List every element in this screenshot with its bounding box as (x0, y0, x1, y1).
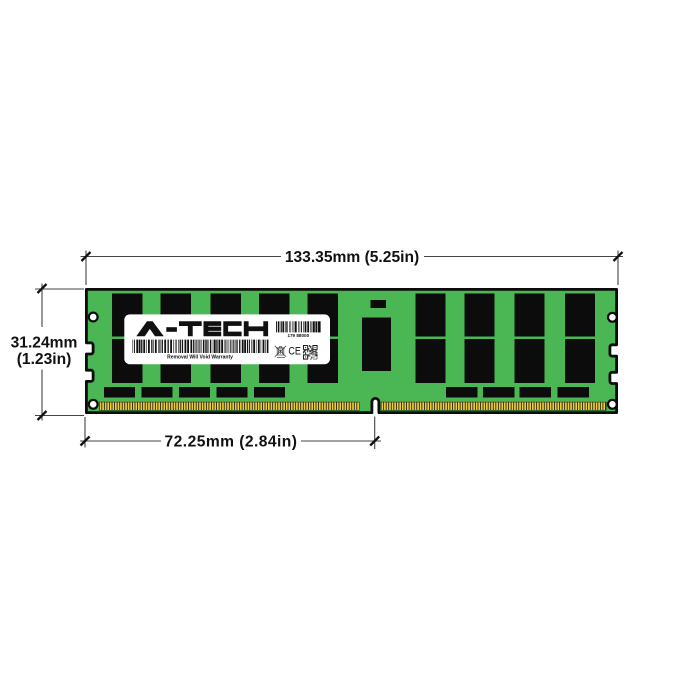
svg-text:31.24mm: 31.24mm (11, 335, 78, 352)
svg-text:72.25mm (2.84in): 72.25mm (2.84in) (165, 434, 298, 451)
svg-text:CE: CE (288, 346, 301, 358)
svg-text:133.35mm (5.25in): 133.35mm (5.25in) (285, 249, 419, 266)
svg-text:(1.23in): (1.23in) (17, 351, 72, 368)
svg-text:179 88000: 179 88000 (287, 333, 309, 338)
svg-text:Removal Will Void Warranty: Removal Will Void Warranty (167, 355, 233, 361)
